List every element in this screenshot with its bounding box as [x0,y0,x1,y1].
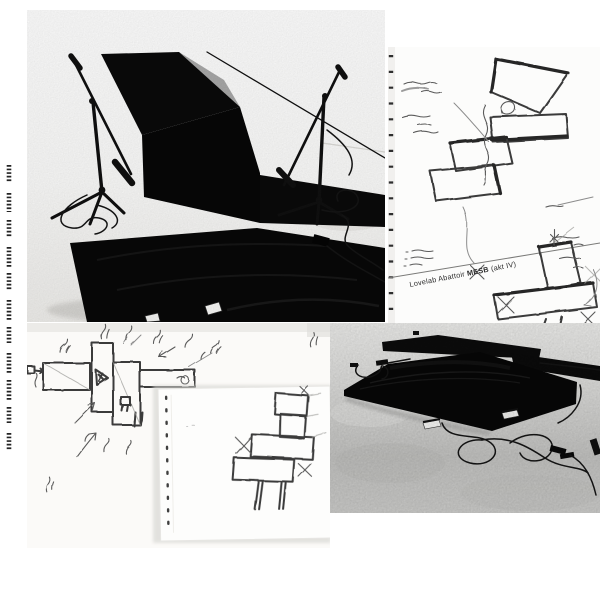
overlay-sketch-page [158,386,330,541]
collage-page: Lovelab Abattoir MESB (akt IV) [0,0,600,600]
photo-installation-mic-stands [27,10,385,322]
photo-grain [27,10,385,322]
sketch-plan-cross [27,323,330,548]
spine-micro-text-marks [3,140,17,470]
sketch-page-rotated-rectangles: Lovelab Abattoir MESB (akt IV) [388,47,600,337]
photo-grain [330,323,600,513]
photo-flat-panels-cables [330,323,600,513]
